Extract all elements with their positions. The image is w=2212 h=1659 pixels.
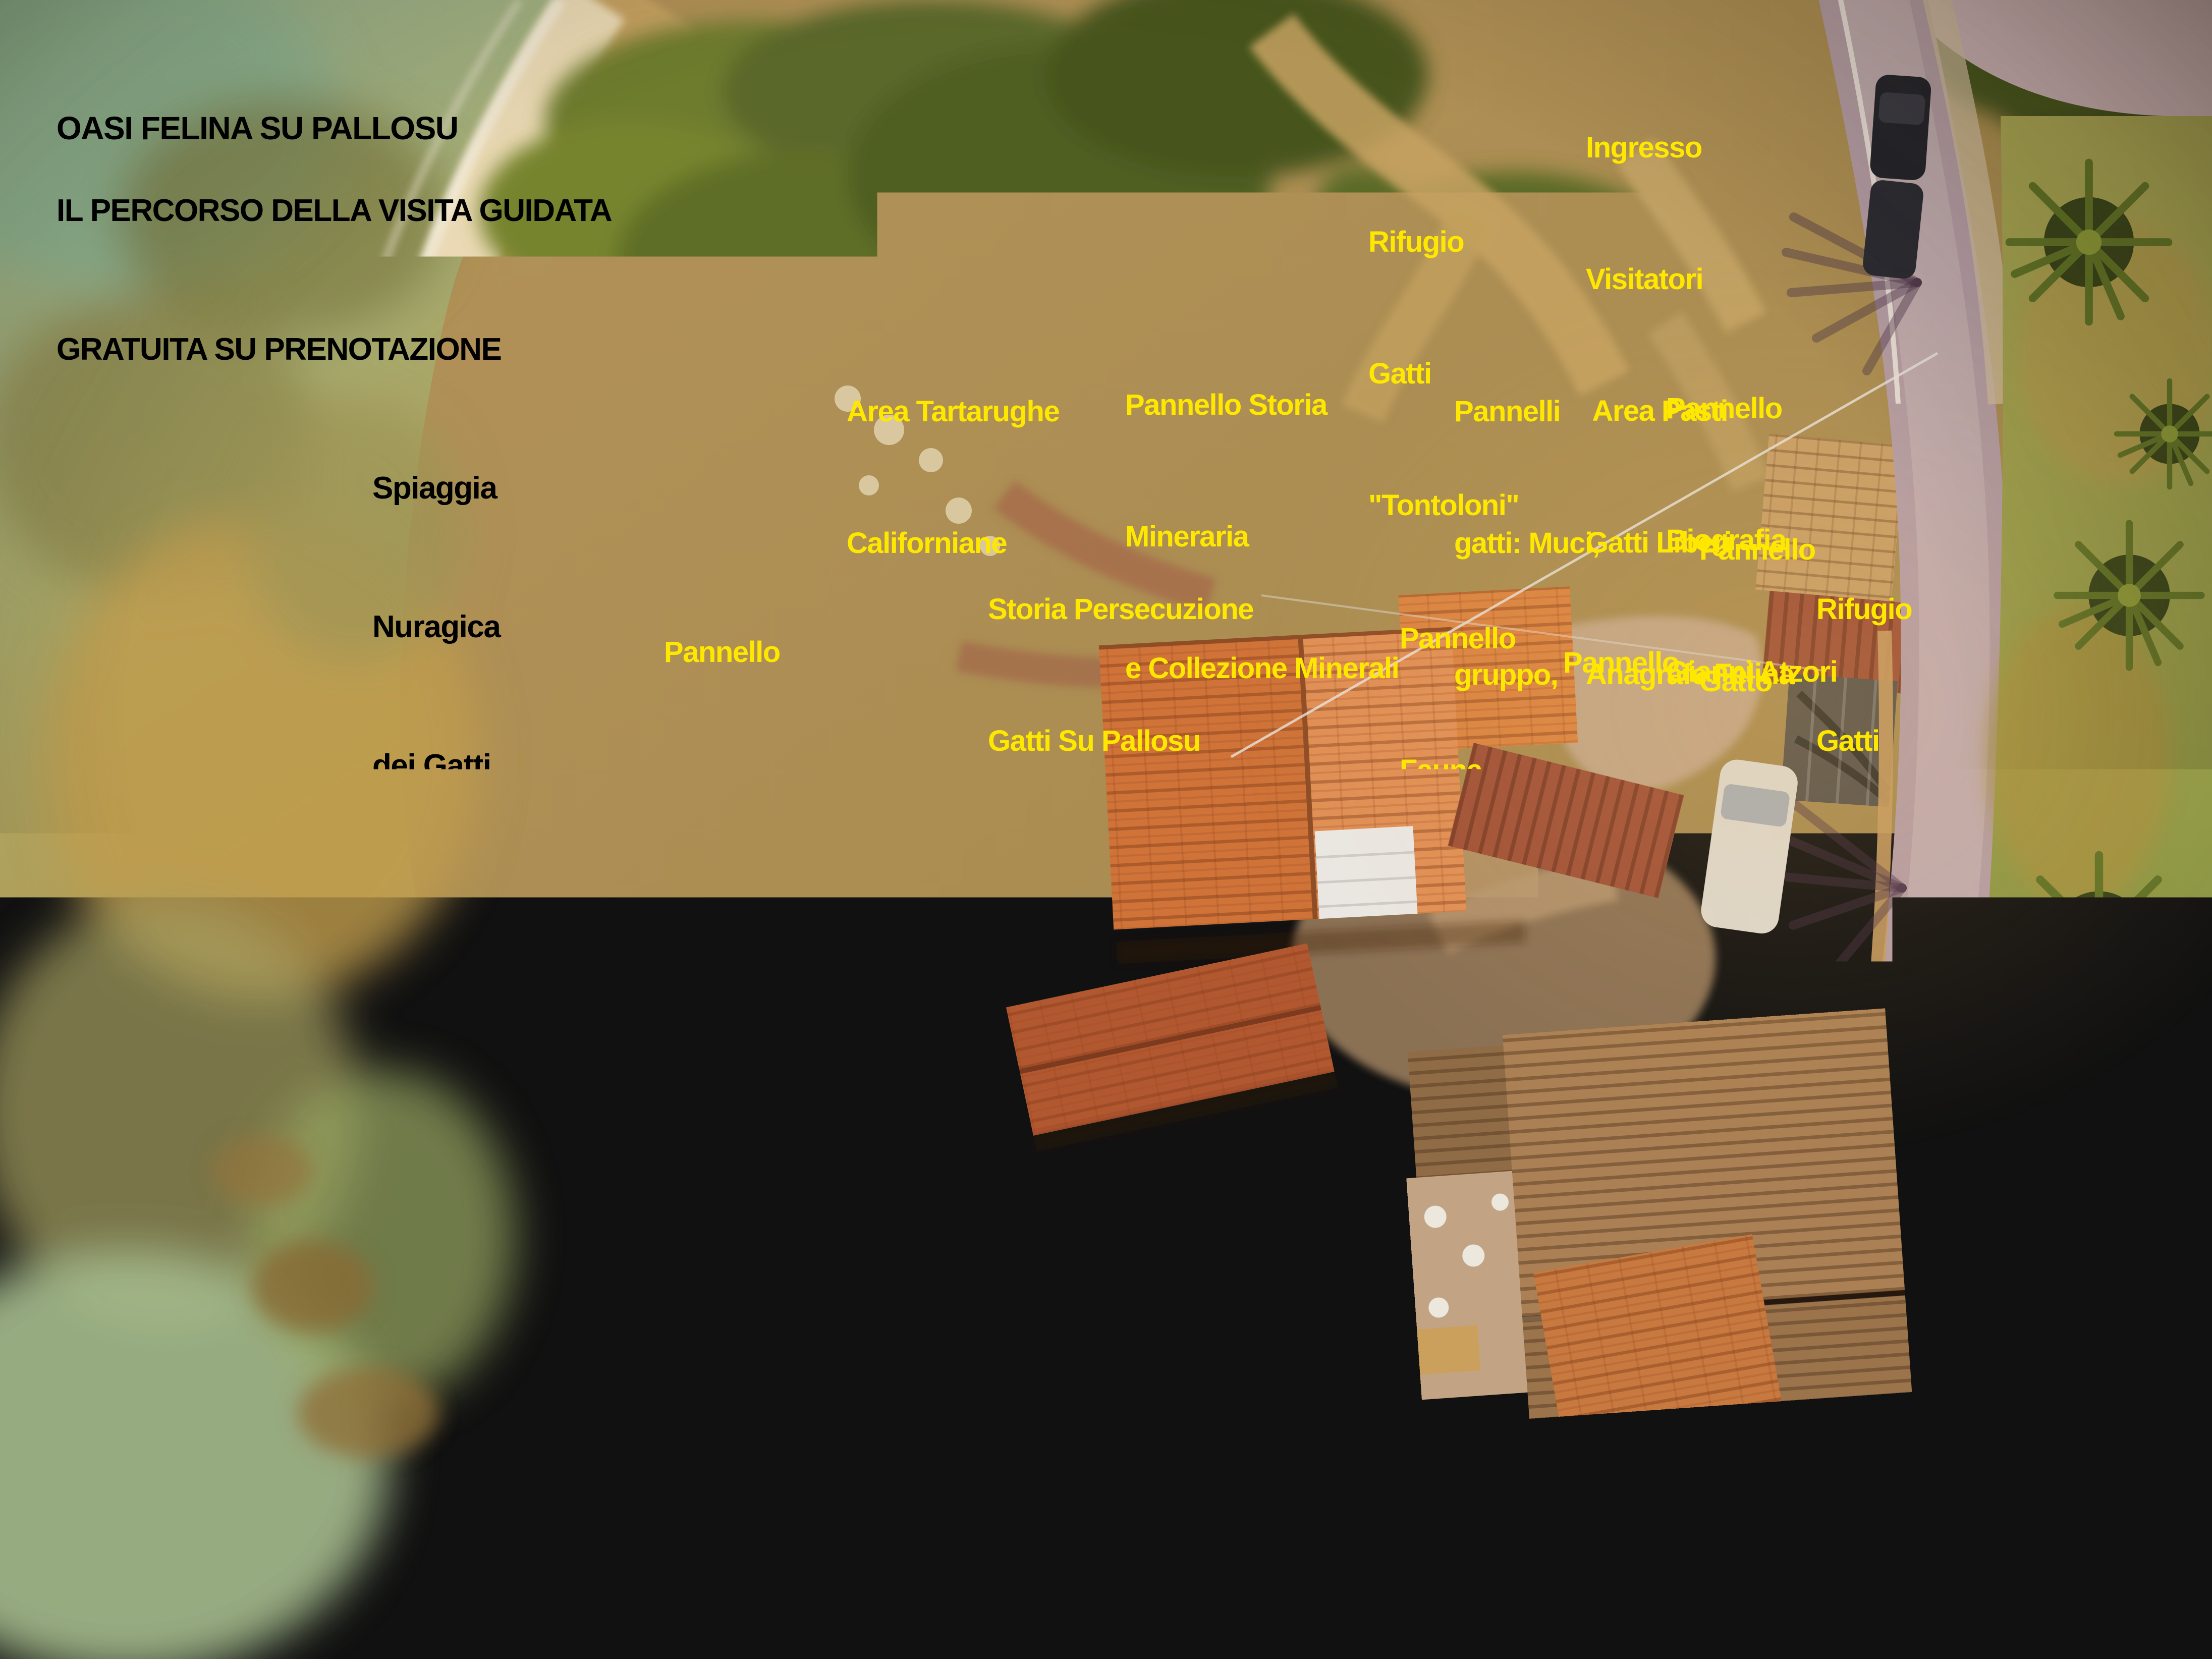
label-area-quarantena: Area Quarantena Gatti e piccola infermer… [1648, 717, 1872, 1288]
aerial-tour-map: OASI FELINA SU PALLOSU IL PERCORSO DELLA… [0, 0, 2212, 1659]
label-tour-subtitle: IL PERCORSO DELLA VISITA GUIDATA GRATUIT… [57, 95, 612, 419]
label-mostra-pesca: Mostra su Pesca e Arte [855, 721, 1074, 1028]
label-punto-panoramico: Punto Panoramico [403, 864, 667, 1049]
label-pannello-fauna: Pannello Fauna [1400, 529, 1516, 836]
label-pannello-archeologia: Pannello Archeologia [664, 542, 825, 850]
label-spiaggia-nuragica: Spiaggia Nuragica dei Gatti [372, 372, 500, 836]
